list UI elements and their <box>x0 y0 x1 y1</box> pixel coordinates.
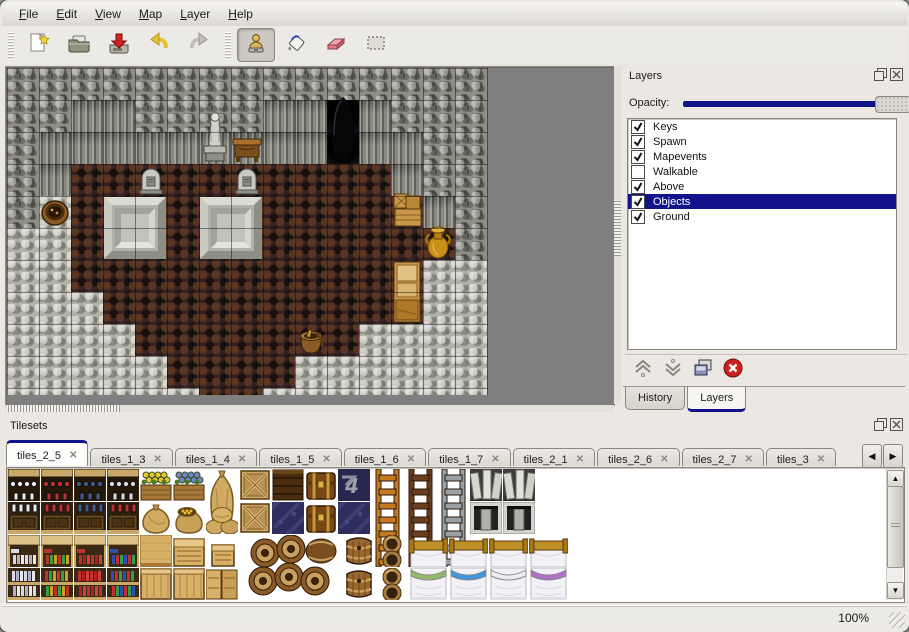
menu-view[interactable]: View <box>86 4 130 24</box>
map-tile[interactable] <box>167 324 199 356</box>
map-tile[interactable] <box>391 356 423 388</box>
menu-layer[interactable]: Layer <box>171 4 219 24</box>
canvas-horizontal-scrollbar[interactable] <box>5 405 614 412</box>
map-tile[interactable] <box>103 68 135 100</box>
map-tile[interactable] <box>327 228 359 260</box>
layer-row-ground[interactable]: Ground <box>628 209 896 224</box>
close-tab-icon[interactable]: ✕ <box>745 454 753 465</box>
scroll-tabs-right-button[interactable]: ▶ <box>883 444 903 468</box>
map-tile[interactable] <box>263 100 295 132</box>
layer-list[interactable]: KeysSpawnMapeventsWalkableAboveObjectsGr… <box>627 118 897 350</box>
map-tile[interactable] <box>263 356 295 388</box>
layer-row-walkable[interactable]: Walkable <box>628 164 896 179</box>
map-tile[interactable] <box>135 132 167 164</box>
tileset-tab-tiles_3[interactable]: tiles_3✕ <box>766 448 836 466</box>
map-tile[interactable] <box>263 132 295 164</box>
tileset-tile-crate_double[interactable] <box>206 568 238 600</box>
map-tile[interactable] <box>391 100 423 132</box>
map-tile[interactable] <box>391 132 423 164</box>
map-tile[interactable] <box>135 260 167 292</box>
scroll-up-icon[interactable]: ▲ <box>887 470 904 487</box>
tileset-tile-counter[interactable] <box>140 535 172 567</box>
tileset-tile-arch[interactable] <box>503 469 535 501</box>
tileset-tile-bed_head[interactable] <box>489 535 528 567</box>
dock-tab-layers[interactable]: Layers <box>687 387 746 412</box>
map-canvas[interactable] <box>7 68 488 395</box>
tileset-tile-shelf_bot[interactable] <box>107 502 139 534</box>
map-tile[interactable] <box>39 388 71 395</box>
layer-row-mapevents[interactable]: Mapevents <box>628 149 896 164</box>
close-tab-icon[interactable]: ✕ <box>491 454 499 465</box>
menu-edit[interactable]: Edit <box>47 4 86 24</box>
map-tile[interactable] <box>231 260 263 292</box>
map-tile[interactable] <box>39 260 71 292</box>
map-tile[interactable] <box>295 292 327 324</box>
layer-visibility-checkbox[interactable] <box>631 165 645 179</box>
map-tile[interactable] <box>359 164 391 196</box>
map-tile[interactable] <box>71 388 103 395</box>
tileset-tile-bed_head[interactable] <box>529 535 568 567</box>
map-tile[interactable] <box>71 228 103 260</box>
tileset-tile-chest[interactable] <box>305 502 337 534</box>
map-tile[interactable] <box>199 324 231 356</box>
layer-visibility-checkbox[interactable] <box>631 195 645 209</box>
new-file-icon <box>27 31 51 60</box>
tileset-tile-crate_x[interactable] <box>239 469 271 501</box>
redo-button[interactable] <box>180 28 218 62</box>
map-tile[interactable] <box>39 228 71 260</box>
redo-icon <box>187 31 211 60</box>
tileset-tile-crate_x[interactable] <box>239 502 271 534</box>
map-tile[interactable] <box>135 100 167 132</box>
tileset-tile-ladder[interactable] <box>437 469 469 501</box>
menubar: FileEditViewMapLayerHelp <box>2 2 907 26</box>
map-tile[interactable] <box>103 132 135 164</box>
map-tile[interactable] <box>359 132 391 164</box>
delete-layer-button[interactable] <box>721 358 745 382</box>
tileset-tile-crate[interactable] <box>173 568 205 600</box>
tileset-tile-bed_head[interactable] <box>409 535 448 567</box>
map-tile[interactable] <box>103 388 135 395</box>
map-tile[interactable] <box>327 388 359 395</box>
close-panel-icon[interactable] <box>890 68 903 81</box>
map-tile[interactable] <box>359 324 391 356</box>
map-tile[interactable] <box>359 228 391 260</box>
tileset-tile-ladder[interactable] <box>371 469 403 501</box>
float-panel-icon[interactable] <box>874 418 887 431</box>
map-tile[interactable] <box>231 324 263 356</box>
tileset-tile-shelf_bot[interactable] <box>41 502 73 534</box>
layer-visibility-checkbox[interactable] <box>631 120 645 134</box>
map-tile[interactable] <box>71 356 103 388</box>
opacity-label: Opacity: <box>629 97 669 109</box>
map-tile[interactable] <box>231 388 263 395</box>
tileset-tile-shelfL_top[interactable] <box>8 535 40 567</box>
tileset-tile-flowerbox[interactable] <box>140 469 172 501</box>
opacity-slider[interactable] <box>683 94 905 112</box>
map-tile[interactable] <box>39 292 71 324</box>
map-tile[interactable] <box>359 356 391 388</box>
tileset-tile-shelf_top[interactable] <box>74 469 106 501</box>
toolbar-handle[interactable] <box>225 32 231 58</box>
tileset-tab-bar: tiles_2_5✕tiles_1_3✕tiles_1_4✕tiles_1_5✕… <box>6 438 862 466</box>
duplicate-layer-button[interactable] <box>691 358 715 382</box>
map-tile[interactable] <box>327 292 359 324</box>
menu-map[interactable]: Map <box>130 4 171 24</box>
map-tile[interactable] <box>295 68 327 100</box>
map-tile[interactable] <box>455 100 487 132</box>
map-tile[interactable] <box>7 100 39 132</box>
eraser-tool-button[interactable] <box>317 28 355 62</box>
close-tab-icon[interactable]: ✕ <box>660 454 668 465</box>
map-tile[interactable] <box>423 292 455 324</box>
map-tile[interactable] <box>167 260 199 292</box>
toolbar-handle[interactable] <box>8 32 14 58</box>
layer-row-spawn[interactable]: Spawn <box>628 134 896 149</box>
map-object-crate-stack <box>391 191 423 228</box>
map-tile[interactable] <box>39 68 71 100</box>
map-tile[interactable] <box>199 164 231 196</box>
map-tile[interactable] <box>391 324 423 356</box>
tileset-tile-shelf_top[interactable] <box>41 469 73 501</box>
map-tile[interactable] <box>71 260 103 292</box>
lower-layer-button[interactable] <box>661 358 685 382</box>
map-tile[interactable] <box>135 388 167 395</box>
map-object-bucket <box>295 324 327 356</box>
tileset-tile-shelf_bot[interactable] <box>74 502 106 534</box>
opacity-slider-handle[interactable] <box>875 96 909 113</box>
tileset-tab-tiles_1_4[interactable]: tiles_1_4✕ <box>175 448 257 466</box>
tileset-tile-crate_dark[interactable] <box>272 469 304 501</box>
tileset-tab-tiles_1_3[interactable]: tiles_1_3✕ <box>90 448 172 466</box>
tileset-tab-label: tiles_1_7 <box>439 454 483 466</box>
map-tile[interactable] <box>455 228 487 260</box>
map-tile[interactable] <box>455 260 487 292</box>
map-tile[interactable] <box>423 356 455 388</box>
tileset-tile-barrel_up[interactable] <box>343 568 375 600</box>
layer-visibility-checkbox[interactable] <box>631 135 645 149</box>
fill-tool-icon <box>284 31 308 60</box>
map-tile[interactable] <box>455 68 487 100</box>
close-tab-icon[interactable]: ✕ <box>576 454 584 465</box>
map-object-desk <box>231 132 263 164</box>
tileset-tile-sack_big[interactable] <box>206 469 238 501</box>
tileset-tile-pots[interactable] <box>376 568 408 600</box>
map-tile[interactable] <box>263 260 295 292</box>
layer-name: Walkable <box>653 166 698 178</box>
tileset-tile-bed_foot[interactable] <box>489 568 528 600</box>
map-tile[interactable] <box>359 260 391 292</box>
tileset-vscroll-thumb[interactable] <box>887 486 904 568</box>
tileset-tile-crate[interactable] <box>140 568 172 600</box>
map-tile[interactable] <box>455 164 487 196</box>
close-tab-icon[interactable]: ✕ <box>817 454 825 465</box>
map-tile[interactable] <box>423 100 455 132</box>
layer-row-above[interactable]: Above <box>628 179 896 194</box>
tileset-tile-sack[interactable] <box>140 502 172 534</box>
map-tile[interactable] <box>7 356 39 388</box>
select-tool-button[interactable] <box>357 28 395 62</box>
undo-button[interactable] <box>140 28 178 62</box>
map-tile[interactable] <box>295 100 327 132</box>
map-tile[interactable] <box>231 68 263 100</box>
map-tile[interactable] <box>295 260 327 292</box>
map-tile[interactable] <box>295 356 327 388</box>
map-tile[interactable] <box>327 164 359 196</box>
map-tile[interactable] <box>167 292 199 324</box>
map-tile[interactable] <box>39 356 71 388</box>
tileset-tile-alcove[interactable] <box>503 502 535 534</box>
opacity-slider-track[interactable] <box>683 101 898 107</box>
tileset-tile-pots[interactable] <box>376 535 408 567</box>
map-tile[interactable] <box>327 324 359 356</box>
map-tile[interactable] <box>295 228 327 260</box>
map-tile[interactable] <box>7 132 39 164</box>
map-tile[interactable] <box>263 196 295 228</box>
tileset-tile-arch[interactable] <box>470 469 502 501</box>
map-tile[interactable] <box>135 356 167 388</box>
map-tile[interactable] <box>135 292 167 324</box>
menu-help[interactable]: Help <box>219 4 262 24</box>
map-tile[interactable] <box>71 324 103 356</box>
map-tile[interactable] <box>71 132 103 164</box>
tileset-tile-navy_tile[interactable] <box>272 502 304 534</box>
tileset-tile-shelfL_bot[interactable] <box>41 568 73 600</box>
lower-layer-icon <box>662 357 684 384</box>
map-tile[interactable] <box>391 68 423 100</box>
map-tile[interactable] <box>167 228 199 260</box>
tileset-tile-shelfL_top[interactable] <box>74 535 106 567</box>
map-tile[interactable] <box>359 196 391 228</box>
map-tile[interactable] <box>423 132 455 164</box>
close-tab-icon[interactable]: ✕ <box>238 454 246 465</box>
map-tile[interactable] <box>7 228 39 260</box>
map-tile[interactable] <box>455 292 487 324</box>
map-tile[interactable] <box>423 324 455 356</box>
map-tile[interactable] <box>455 324 487 356</box>
map-tile[interactable] <box>359 388 391 395</box>
map-tile[interactable] <box>455 196 487 228</box>
tileset-tile-bed_foot[interactable] <box>449 568 488 600</box>
tileset-tile-bed_head[interactable] <box>449 535 488 567</box>
tileset-tab-tiles_1_7[interactable]: tiles_1_7✕ <box>428 448 510 466</box>
close-tab-icon[interactable]: ✕ <box>69 450 77 461</box>
map-tile[interactable] <box>199 356 231 388</box>
map-tile[interactable] <box>103 292 135 324</box>
tileset-tab-tiles_2_6[interactable]: tiles_2_6✕ <box>597 448 679 466</box>
canvas-hscroll-thumb[interactable] <box>7 405 120 412</box>
map-tile[interactable] <box>263 388 295 395</box>
tileset-tile-shelf_top[interactable] <box>107 469 139 501</box>
map-tile[interactable] <box>103 356 135 388</box>
tileset-tab-tiles_1_5[interactable]: tiles_1_5✕ <box>259 448 341 466</box>
new-file-button[interactable] <box>20 28 58 62</box>
map-tile[interactable] <box>103 324 135 356</box>
map-tile[interactable] <box>199 292 231 324</box>
map-tile[interactable] <box>71 68 103 100</box>
map-tile[interactable] <box>263 324 295 356</box>
tileset-tab-label: tiles_3 <box>777 454 809 466</box>
map-tile[interactable] <box>7 388 39 395</box>
map-tile[interactable] <box>135 68 167 100</box>
tileset-tile-ladder[interactable] <box>404 469 436 501</box>
tileset-tile-shelfL_top[interactable] <box>41 535 73 567</box>
map-tile[interactable] <box>295 164 327 196</box>
close-tab-icon[interactable]: ✕ <box>407 454 415 465</box>
map-tile[interactable] <box>359 100 391 132</box>
layer-row-objects[interactable]: Objects <box>628 194 896 209</box>
map-tile[interactable] <box>455 388 487 395</box>
tileset-tile-shelfL_top[interactable] <box>107 535 139 567</box>
map-tile[interactable] <box>167 100 199 132</box>
map-tile[interactable] <box>103 260 135 292</box>
map-tile[interactable] <box>359 68 391 100</box>
map-tile[interactable] <box>167 68 199 100</box>
map-tile[interactable] <box>327 356 359 388</box>
map-tile[interactable] <box>423 260 455 292</box>
layer-name: Keys <box>653 121 677 133</box>
map-tile[interactable] <box>39 164 71 196</box>
map-tile[interactable] <box>327 196 359 228</box>
map-tile[interactable] <box>167 388 199 395</box>
map-tile[interactable] <box>39 132 71 164</box>
tileset-vertical-scrollbar[interactable]: ▲ ▼ <box>886 469 903 600</box>
tileset-tile-bed_foot[interactable] <box>529 568 568 600</box>
map-tile[interactable] <box>71 196 103 228</box>
tileset-tile-crate_lid[interactable] <box>173 535 205 567</box>
map-tile[interactable] <box>199 260 231 292</box>
map-tile[interactable] <box>391 228 423 260</box>
tileset-tile-shelfL_bot[interactable] <box>74 568 106 600</box>
map-tile[interactable] <box>71 100 103 132</box>
map-tile[interactable] <box>391 388 423 395</box>
map-tile[interactable] <box>167 132 199 164</box>
tileset-tile-barrels_pile[interactable] <box>247 535 340 599</box>
tileset-tile-sack_pile[interactable] <box>206 502 238 534</box>
dock-tab-bar: HistoryLayers <box>623 386 905 413</box>
layer-name: Ground <box>653 211 690 223</box>
tileset-tile-shelf_bot[interactable] <box>8 502 40 534</box>
tileset-tile-navy_tile[interactable] <box>338 502 370 534</box>
tileset-tab-label: tiles_1_4 <box>186 454 230 466</box>
map-tile[interactable] <box>7 324 39 356</box>
map-tile[interactable] <box>263 164 295 196</box>
float-panel-icon[interactable] <box>874 68 887 81</box>
resize-grip[interactable] <box>889 612 905 628</box>
zoom-level: 100% <box>838 611 869 625</box>
tileset-tile-shelf_top[interactable] <box>8 469 40 501</box>
close-panel-icon[interactable] <box>890 418 903 431</box>
map-object-gravestone <box>231 164 263 196</box>
tileset-tab-tiles_2_1[interactable]: tiles_2_1✕ <box>513 448 595 466</box>
open-folder-button[interactable] <box>60 28 98 62</box>
layer-visibility-checkbox[interactable] <box>631 210 645 224</box>
tileset-tile-sack_open[interactable] <box>173 502 205 534</box>
map-tile[interactable] <box>423 68 455 100</box>
eraser-tool-icon <box>324 31 348 60</box>
map-tile[interactable] <box>7 164 39 196</box>
canvas-vertical-scrollbar[interactable] <box>614 66 621 404</box>
tileset-tab-tiles_1_6[interactable]: tiles_1_6✕ <box>344 448 426 466</box>
toolbar <box>2 26 907 64</box>
tileset-tab-tiles_2_7[interactable]: tiles_2_7✕ <box>682 448 764 466</box>
tileset-view[interactable]: 4 ▲ ▼ <box>6 467 905 603</box>
close-tab-icon[interactable]: ✕ <box>322 454 330 465</box>
map-tile[interactable] <box>135 324 167 356</box>
map-tile[interactable] <box>71 292 103 324</box>
map-tile[interactable] <box>39 100 71 132</box>
tileset-tile-chest[interactable] <box>305 469 337 501</box>
map-tile[interactable] <box>263 228 295 260</box>
map-tile[interactable] <box>199 388 231 395</box>
layer-name: Spawn <box>653 136 687 148</box>
map-tile[interactable] <box>167 196 199 228</box>
fill-tool-button[interactable] <box>277 28 315 62</box>
map-tile[interactable] <box>327 260 359 292</box>
map-tile[interactable] <box>231 292 263 324</box>
layer-row-keys[interactable]: Keys <box>628 119 896 134</box>
map-tile[interactable] <box>423 388 455 395</box>
map-tile[interactable] <box>263 292 295 324</box>
map-object-gravestone <box>135 164 167 196</box>
map-tile[interactable] <box>7 292 39 324</box>
map-tile[interactable] <box>39 324 71 356</box>
tileset-tile-flowerbox[interactable] <box>173 469 205 501</box>
map-tile[interactable] <box>231 100 263 132</box>
tileset-tile-shelfL_bot[interactable] <box>107 568 139 600</box>
map-tile[interactable] <box>7 260 39 292</box>
map-tile[interactable] <box>103 164 135 196</box>
tileset-tab-tiles_2_5[interactable]: tiles_2_5✕ <box>6 440 88 466</box>
map-tile[interactable] <box>167 164 199 196</box>
canvas-vscroll-thumb[interactable] <box>614 200 621 256</box>
map-tile[interactable] <box>455 132 487 164</box>
tileset-tile-bed_foot[interactable] <box>409 568 448 600</box>
map-tile[interactable] <box>295 196 327 228</box>
map-tile[interactable] <box>167 356 199 388</box>
map-tile[interactable] <box>199 68 231 100</box>
scroll-down-icon[interactable]: ▼ <box>887 582 904 599</box>
close-tab-icon[interactable]: ✕ <box>153 454 161 465</box>
map-tile[interactable] <box>103 100 135 132</box>
raise-layer-button[interactable] <box>631 358 655 382</box>
layer-visibility-checkbox[interactable] <box>631 150 645 164</box>
tileset-tile-barrel_up[interactable] <box>343 535 375 567</box>
map-object-entrance <box>327 95 359 164</box>
tileset-tab-label: tiles_2_5 <box>17 450 61 462</box>
map-tile[interactable] <box>295 132 327 164</box>
tileset-tile-logo4[interactable]: 4 <box>338 469 370 501</box>
layer-visibility-checkbox[interactable] <box>631 180 645 194</box>
menu-file[interactable]: File <box>10 4 47 24</box>
tileset-tile-shelfL_bot[interactable] <box>8 568 40 600</box>
stamp-tool-button[interactable] <box>237 28 275 62</box>
map-tile[interactable] <box>7 196 39 228</box>
map-tile[interactable] <box>295 388 327 395</box>
save-button[interactable] <box>100 28 138 62</box>
map-tile[interactable] <box>231 356 263 388</box>
map-tile[interactable] <box>359 292 391 324</box>
scroll-tabs-left-button[interactable]: ◀ <box>862 444 882 468</box>
tileset-tile-alcove[interactable] <box>470 502 502 534</box>
map-tile[interactable] <box>423 164 455 196</box>
tileset-tile-crate_small[interactable] <box>206 535 238 567</box>
dock-tab-history[interactable]: History <box>625 387 685 410</box>
map-tile[interactable] <box>7 68 39 100</box>
map-tile[interactable] <box>263 68 295 100</box>
map-tile[interactable] <box>455 356 487 388</box>
map-tile[interactable] <box>71 164 103 196</box>
